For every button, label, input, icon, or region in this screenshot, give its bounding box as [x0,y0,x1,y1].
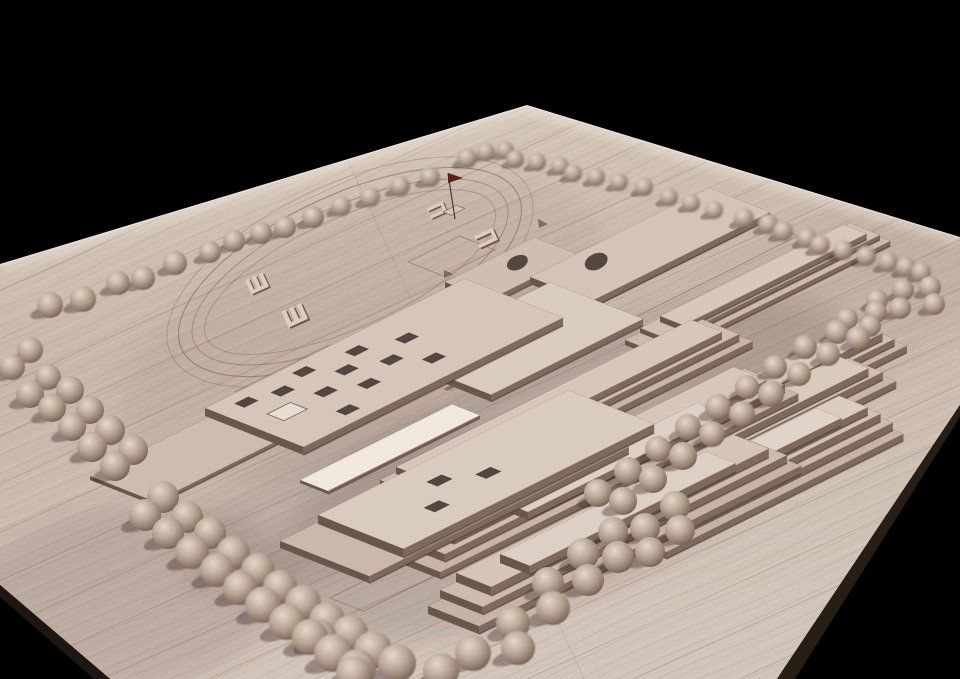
tree-ball [223,230,245,252]
tree-ball [564,164,582,182]
tree-ball [699,421,725,447]
tree-ball [635,537,665,567]
tree-ball [878,252,898,272]
tree-ball [793,335,817,359]
tree-ball [528,153,546,171]
tree-ball [536,591,570,625]
tree-ball [682,194,700,212]
tree-ball [37,292,63,318]
tree-ball [810,235,830,255]
tree-ball [639,465,667,493]
tree-ball [816,342,840,366]
tree-ball [856,246,876,266]
tree-ball [705,201,723,219]
tree-ball [390,176,410,196]
tree-ball [833,240,853,260]
tree-ball [734,208,754,228]
model-photo-stage [0,0,960,679]
tree-ball [587,168,605,186]
tree-ball [77,432,107,462]
tree-ball [100,451,130,481]
tree-ball [602,541,634,573]
tree-ball [846,326,870,350]
tree-ball [609,487,637,515]
tree-ball [0,354,25,380]
tree-ball [660,188,678,206]
tree-ball [455,635,491,671]
tree-ball [669,442,697,470]
tree-ball [889,297,911,319]
tree-ball [274,216,296,238]
tree-ball [735,375,759,399]
tree-ball [572,564,604,596]
tree-ball [645,436,671,462]
architectural-model-render [0,0,960,679]
tree-ball [420,167,440,187]
tree-ball [729,401,755,427]
tree-ball [610,173,628,191]
tree-ball [923,293,945,315]
tree-ball [665,515,695,545]
tree-ball [331,196,351,216]
tree-ball [705,394,731,420]
tree-ball [131,266,155,290]
tree-ball [584,479,612,507]
tree-ball [506,150,524,168]
tree-ball [163,251,187,275]
tree-ball [477,143,495,161]
tree-ball [199,241,221,263]
tree-ball [763,355,787,379]
tree-ball [302,206,324,228]
tree-ball [787,362,811,386]
tree-ball [501,631,535,665]
tree-ball [635,178,653,196]
tree-ball [675,414,701,440]
tree-ball [758,381,784,407]
tree-ball [360,187,380,207]
tree-ball [106,271,130,295]
tree-ball [614,457,642,485]
tree-ball [457,148,477,168]
tree-ball [70,286,96,312]
tree-ball [773,221,793,241]
tree-ball [825,320,849,344]
tree-ball [250,222,272,244]
